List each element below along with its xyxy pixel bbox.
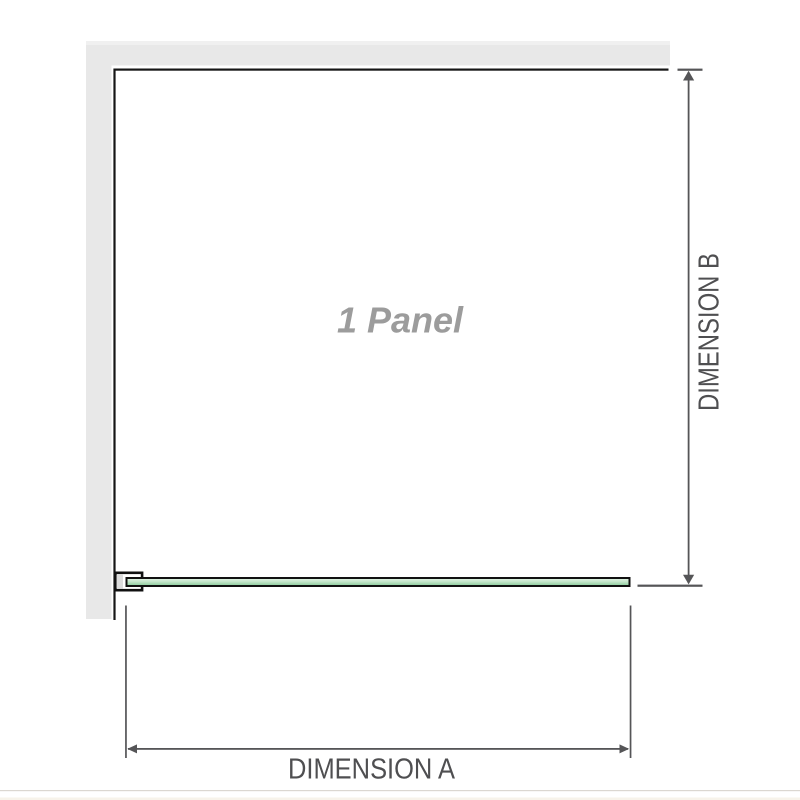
svg-text:1 Panel: 1 Panel [337, 300, 464, 341]
svg-text:DIMENSION B: DIMENSION B [694, 253, 726, 411]
svg-text:DIMENSION A: DIMENSION A [288, 754, 456, 786]
